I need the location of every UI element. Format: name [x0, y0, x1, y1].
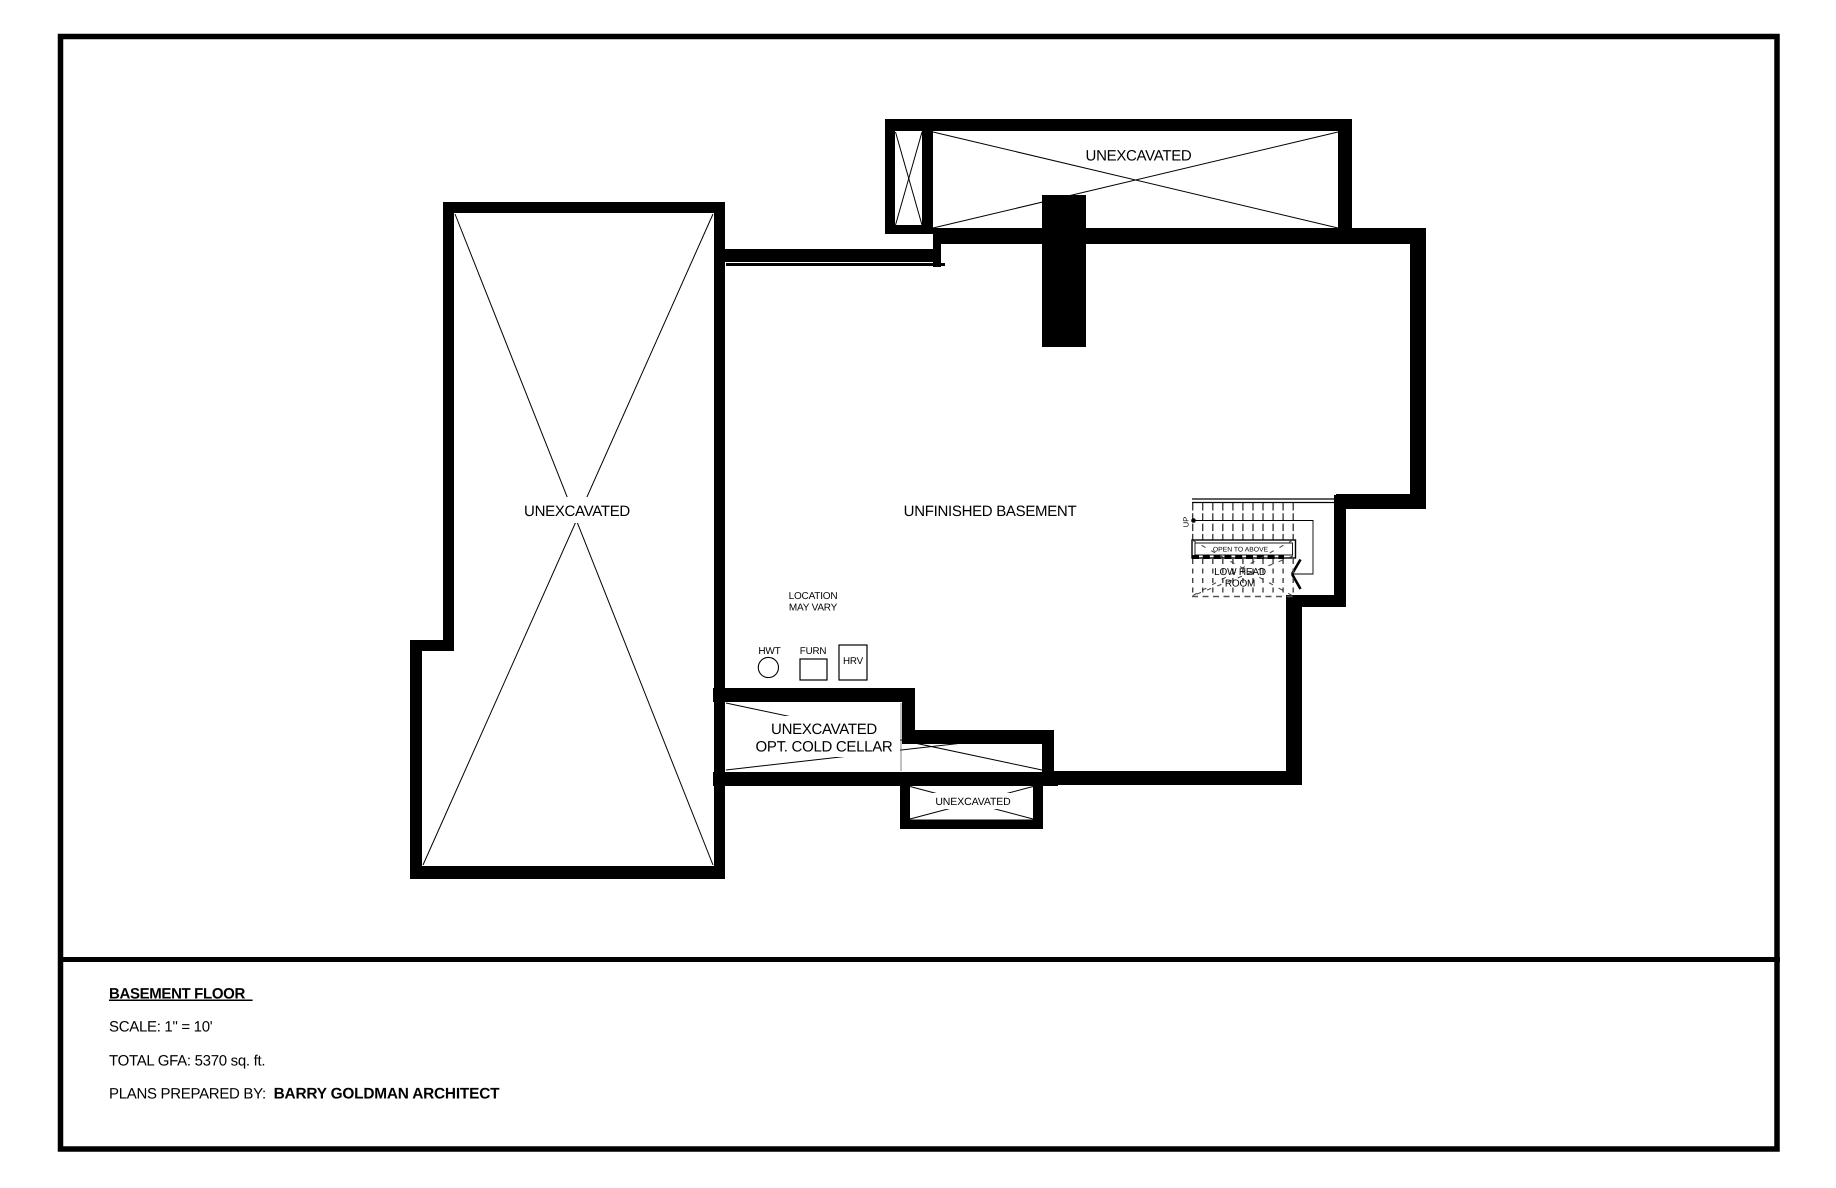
svg-text:OPEN TO ABOVE: OPEN TO ABOVE — [1213, 547, 1269, 554]
svg-text:OPT. COLD CELLAR: OPT. COLD CELLAR — [756, 739, 893, 756]
svg-text:UNEXCAVATED: UNEXCAVATED — [771, 721, 877, 738]
svg-text:MAY VARY: MAY VARY — [789, 603, 838, 614]
svg-text:LOW HEAD: LOW HEAD — [1214, 567, 1266, 578]
svg-text:UNEXCAVATED: UNEXCAVATED — [1086, 148, 1192, 165]
svg-text:HWT: HWT — [758, 646, 780, 657]
svg-text:UNFINISHED BASEMENT: UNFINISHED BASEMENT — [904, 503, 1077, 520]
svg-text:UNEXCAVATED: UNEXCAVATED — [935, 796, 1011, 808]
svg-text:ROOM: ROOM — [1225, 579, 1255, 590]
svg-text:FURN: FURN — [800, 646, 827, 657]
svg-text:UNEXCAVATED: UNEXCAVATED — [524, 503, 630, 520]
svg-text:PLANS PREPARED BY: BARRY GOLD: PLANS PREPARED BY: BARRY GOLDMAN ARCHITE… — [109, 1086, 500, 1103]
svg-text:UP: UP — [1182, 517, 1191, 527]
svg-text:LOCATION: LOCATION — [789, 591, 838, 602]
svg-text:HRV: HRV — [843, 656, 864, 667]
svg-text:TOTAL GFA: 5370 sq. ft.: TOTAL GFA: 5370 sq. ft. — [109, 1053, 265, 1070]
svg-text:BASEMENT FLOOR: BASEMENT FLOOR — [109, 986, 253, 1003]
svg-text:SCALE: 1" = 10': SCALE: 1" = 10' — [109, 1019, 213, 1036]
